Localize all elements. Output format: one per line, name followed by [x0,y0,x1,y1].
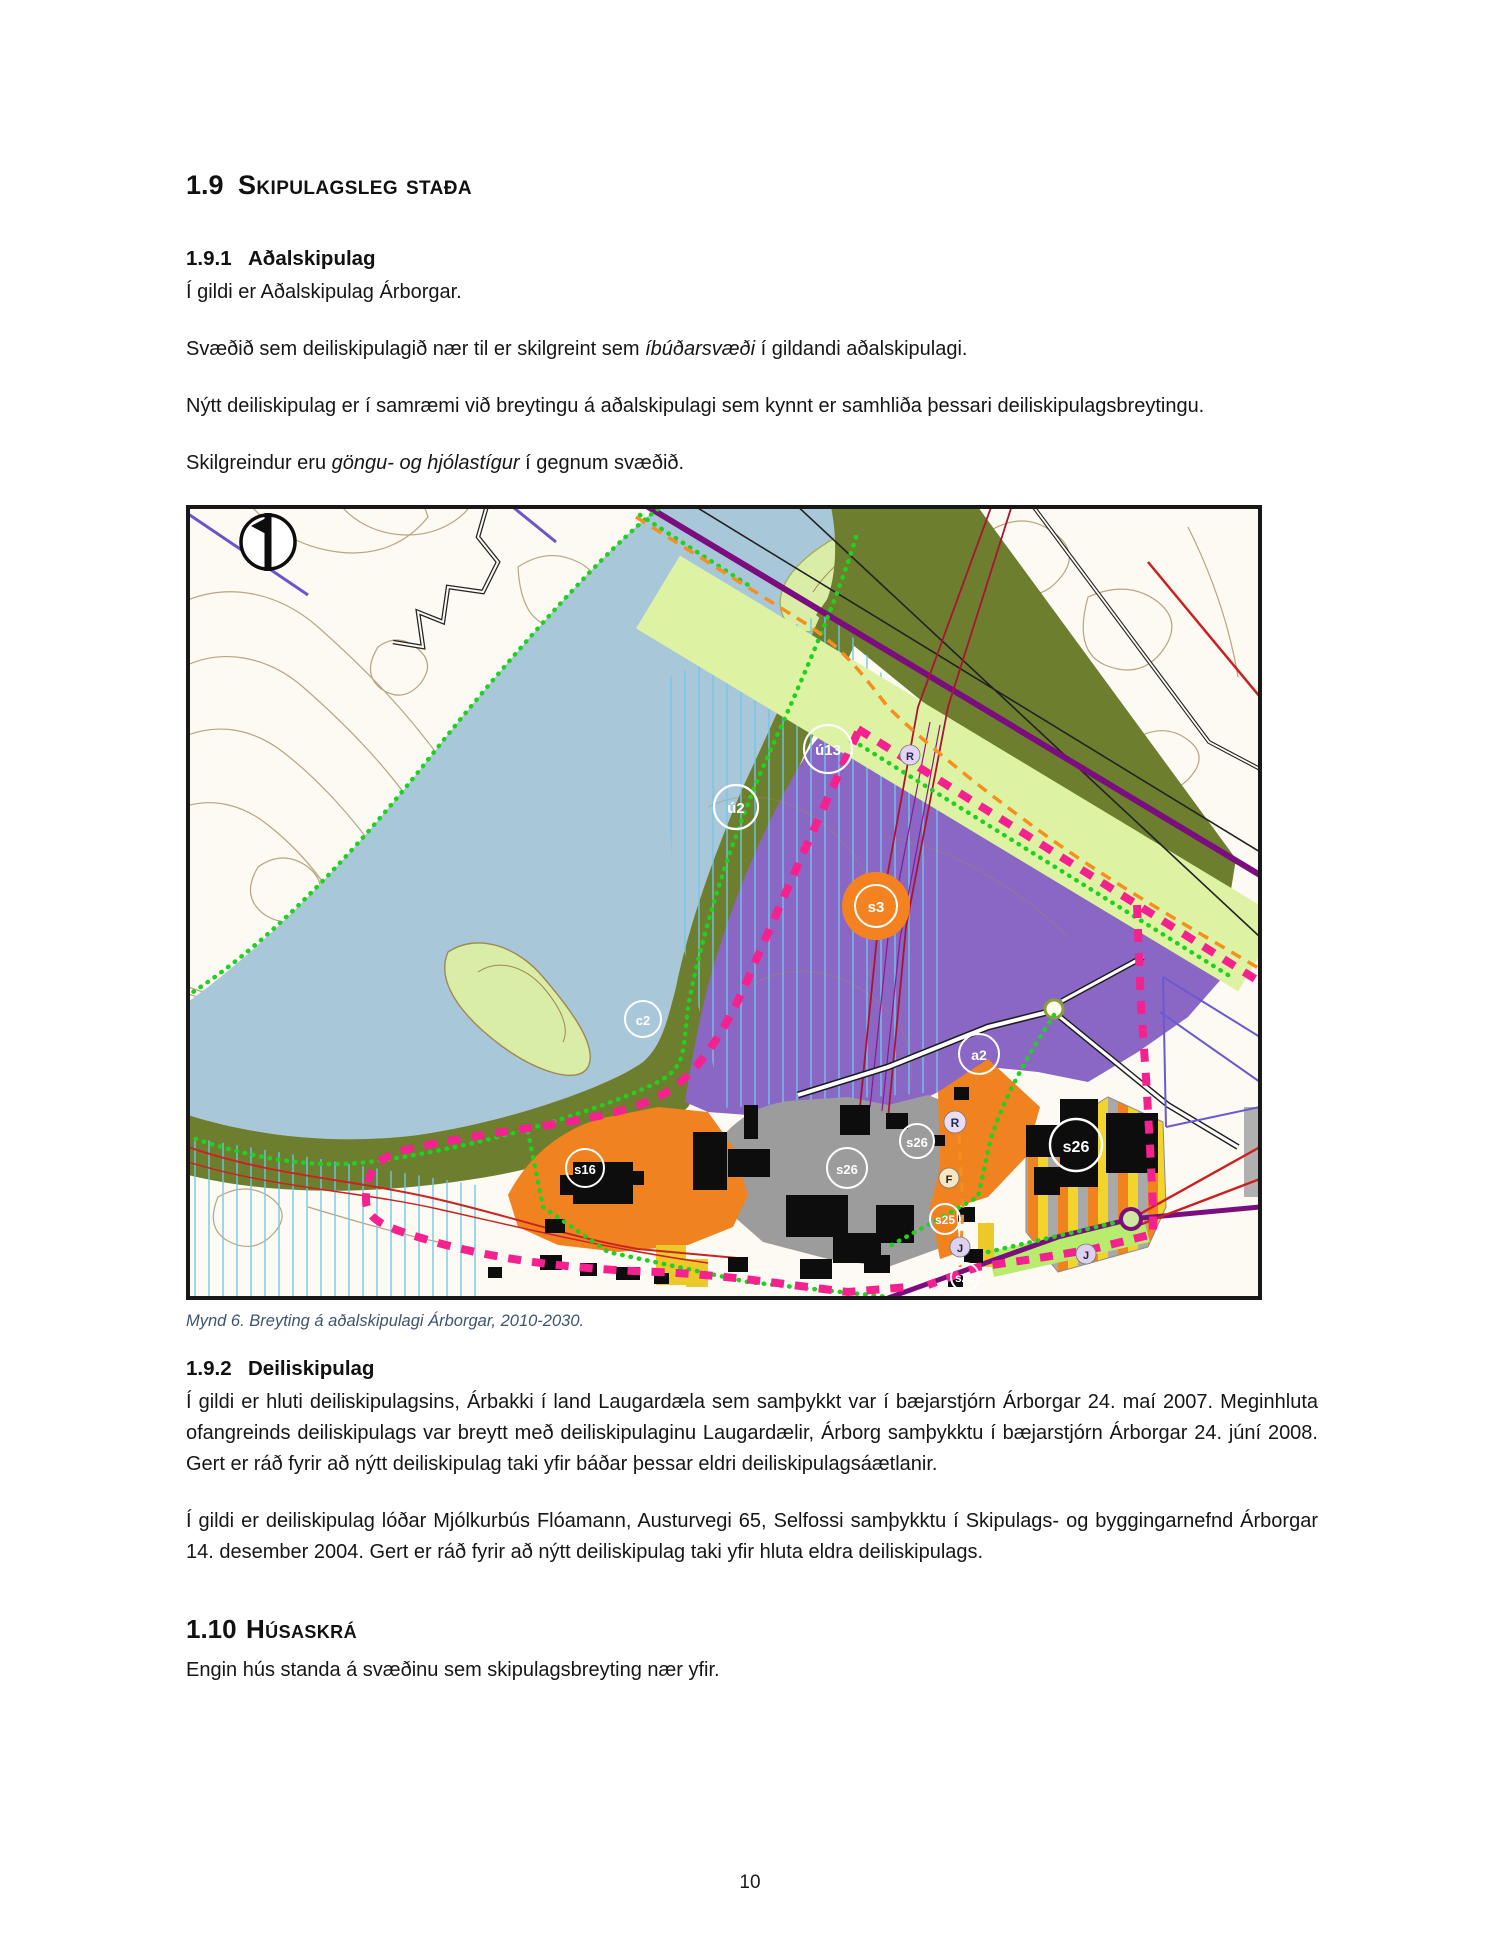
badge-r1: R [906,751,914,763]
badge-j1: J [957,1243,963,1255]
paragraph-text: Skilgreindur eru [186,452,332,474]
label-s26: s26 [906,1135,928,1150]
label-a2: a2 [971,1047,987,1063]
subsection-number: 1.9.1 [186,247,248,271]
figure-planning-map: s3 ú2 ú13 c2 a2 s16 s26 s26 [186,505,1318,1331]
section-number: 1.9 [186,170,238,201]
paragraph-text: í gildandi aðalskipulagi. [755,338,967,360]
paragraph: Nýtt deiliskipulag er í samræmi við brey… [186,391,1318,422]
label-s26-gray: s26 [836,1162,858,1177]
subsection-title: Deiliskipulag [248,1357,374,1380]
section-number: 1.10 [186,1614,246,1645]
subsection-number: 1.9.2 [186,1357,248,1381]
paragraph: Í gildi er Aðalskipulag Árborgar. [186,277,1318,308]
subsection-title: Aðalskipulag [248,247,376,270]
paragraph: Í gildi er deiliskipulag lóðar Mjólkurbú… [186,1506,1318,1568]
document-content: 1.9Skipulagsleg staða 1.9.1Aðalskipulag … [186,170,1318,1712]
roundabout-south [1121,1209,1141,1229]
label-u13: ú13 [815,742,841,759]
paragraph-text: í gegnum svæðið. [520,452,685,474]
north-arrow-icon [241,513,295,571]
label-u2: ú2 [727,800,745,817]
paragraph: Í gildi er hluti deiliskipulagsins, Árba… [186,1387,1318,1480]
section-heading-1-9: 1.9Skipulagsleg staða [186,170,1318,201]
document-page: 1.9Skipulagsleg staða 1.9.1Aðalskipulag … [0,0,1500,1942]
paragraph-emphasis: göngu- og hjólastígur [332,452,520,474]
label-s16: s16 [574,1162,596,1177]
paragraph: Skilgreindur eru göngu- og hjólastígur í… [186,448,1318,479]
subsection-heading-1-9-1: 1.9.1Aðalskipulag [186,247,1318,271]
page-number: 10 [0,1872,1500,1894]
badge-r2: R [951,1116,960,1130]
paragraph-emphasis: íbúðarsvæði [645,338,755,360]
section-title: Húsaskrá [246,1614,357,1644]
badge-f: F [946,1174,953,1186]
label-s25: s25 [935,1213,955,1227]
label-c2: c2 [636,1013,650,1028]
section-heading-1-10: 1.10Húsaskrá [186,1614,1318,1645]
paragraph-text: Svæðið sem deiliskipulagið nær til er sk… [186,338,645,360]
label-s26-small: s26 [955,1271,975,1285]
label-s26-striped: s26 [1063,1139,1090,1156]
label-s3: s3 [868,899,885,916]
badge-j2: J [1083,1250,1089,1262]
planning-map: s3 ú2 ú13 c2 a2 s16 s26 s26 [186,505,1262,1300]
figure-caption: Mynd 6. Breyting á aðalskipulagi Árborga… [186,1312,1318,1331]
paragraph: Engin hús standa á svæðinu sem skipulags… [186,1655,1318,1686]
section-title: Skipulagsleg staða [238,170,472,200]
paragraph: Svæðið sem deiliskipulagið nær til er sk… [186,334,1318,365]
subsection-heading-1-9-2: 1.9.2Deiliskipulag [186,1357,1318,1381]
